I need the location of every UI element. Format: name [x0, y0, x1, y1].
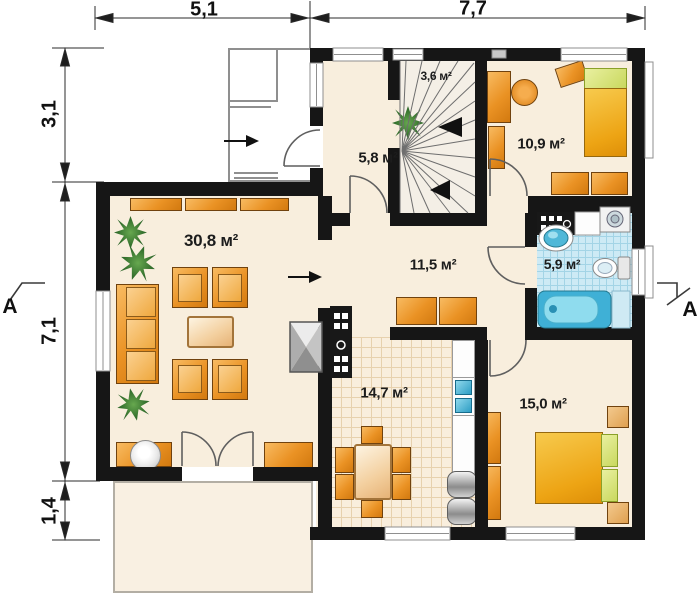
wardrobe [483, 466, 501, 520]
armchair [172, 267, 208, 308]
armchair [212, 359, 248, 400]
room-label-hall: 5,8 м² [358, 150, 397, 167]
dining-chair [335, 474, 354, 500]
dim-top-1: 5,1 [190, 0, 218, 22]
room-label-living-room: 30,8 м² [184, 231, 238, 251]
nightstand [607, 406, 629, 428]
section-marker-left: A [2, 295, 17, 319]
sideboard [396, 297, 437, 325]
cabinet [264, 442, 313, 468]
sofa [116, 284, 159, 384]
dining-chair [392, 447, 411, 473]
wardrobe [551, 172, 589, 195]
terrace [113, 481, 313, 593]
wall-shelf [240, 198, 289, 211]
wardrobe [483, 412, 501, 464]
armchair [172, 359, 208, 400]
armchair [212, 267, 248, 308]
sideboard [439, 297, 477, 325]
dim-left-1: 3,1 [39, 100, 62, 128]
double-bed [535, 432, 603, 504]
room-label-bedroom-small: 10,9 м² [517, 136, 564, 153]
room-label-staircase: 3,6 м² [420, 69, 451, 83]
plant [114, 216, 147, 249]
dim-top-2: 7,7 [459, 0, 487, 21]
floor-plan: 5,1 7,7 3,1 7,1 1,4 A A 3,6 м² 5,8 м² 10… [0, 0, 700, 595]
sofa-cushion [126, 319, 156, 349]
plant [392, 106, 424, 140]
water-heater [447, 498, 477, 525]
nightstand [607, 502, 629, 524]
section-marker-right: A [682, 298, 697, 322]
sofa-cushion [126, 351, 156, 381]
coffee-table [187, 316, 234, 348]
room-label-bathroom: 5,9 м² [544, 256, 581, 272]
entry-arrow-icon [224, 135, 259, 147]
dining-chair [392, 474, 411, 500]
cabinet [488, 126, 505, 169]
bed-cover [584, 88, 627, 157]
dining-table [354, 444, 392, 500]
dining-chair [361, 500, 383, 518]
wall-shelf [185, 198, 237, 211]
sofa-cushion [126, 287, 156, 317]
entry-porch-walls [229, 49, 310, 181]
dim-left-3: 1,4 [39, 497, 62, 525]
wardrobe [591, 172, 628, 195]
desk [487, 71, 511, 123]
pillow [601, 469, 618, 502]
dim-left-2: 7,1 [39, 317, 62, 345]
dining-chair [335, 447, 354, 473]
room-label-corridor: 11,5 м² [410, 257, 457, 274]
staircase-floor [400, 61, 475, 213]
pillow [601, 434, 618, 467]
single-bed [584, 68, 627, 157]
pillow [584, 68, 627, 89]
dining-chair [361, 426, 383, 444]
room-label-bedroom-main: 15,0 м² [519, 396, 566, 413]
water-heater [447, 471, 477, 498]
room-label-kitchen: 14,7 м² [360, 385, 407, 402]
vase [130, 440, 161, 471]
wall-shelf [130, 198, 182, 211]
desk-chair [511, 79, 538, 106]
kitchen-sink [452, 377, 475, 416]
